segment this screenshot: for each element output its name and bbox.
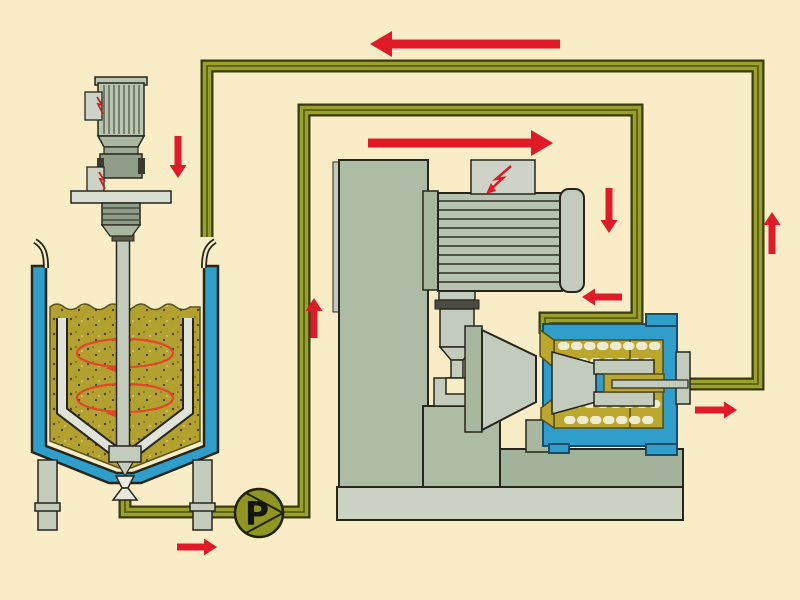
outlet-flange — [676, 352, 690, 404]
mill-inlet-left-arrow — [582, 289, 622, 306]
mill-casing-tab-bottom — [646, 444, 677, 455]
feed-flow-to-mill-arrow — [368, 130, 553, 156]
mill-casing-tab-left — [549, 444, 569, 453]
base-slab-lower — [337, 487, 683, 520]
seal-housing — [100, 154, 142, 178]
agitator-drive — [71, 77, 171, 236]
outlet-channel — [612, 380, 688, 388]
return-flow-top-arrow — [370, 31, 560, 57]
gear-block — [104, 147, 138, 154]
mounting-plate — [71, 191, 171, 203]
mill-neck — [465, 326, 482, 432]
process-diagram-canvas: P — [0, 0, 800, 600]
process-diagram: P — [0, 0, 800, 600]
mill-motor-body — [438, 193, 562, 291]
agitator-feed-down-arrow — [170, 136, 187, 178]
mill-motor — [423, 160, 584, 292]
agitator-motor-body — [98, 83, 144, 136]
rotor-arm-bottom — [594, 392, 654, 406]
rotor-arm-top — [594, 360, 654, 374]
premix-tank — [32, 203, 218, 530]
bell-cone — [482, 330, 536, 430]
pump-label: P — [245, 494, 269, 533]
mill-casing-tab-top — [646, 314, 677, 326]
mill-motor-down-arrow — [601, 188, 618, 233]
motor-end-cap — [560, 189, 584, 292]
circulation-pump: P — [235, 489, 283, 537]
mill-outlet-right-arrow — [695, 402, 737, 419]
shaft-hub — [109, 446, 141, 462]
motor-flange — [98, 136, 144, 147]
return-riser-up-arrow — [764, 212, 781, 254]
seal-nub-right — [138, 158, 145, 174]
motor-bracket — [423, 191, 438, 290]
stand-column — [339, 160, 428, 487]
tank-outlet-arrow — [177, 539, 217, 556]
